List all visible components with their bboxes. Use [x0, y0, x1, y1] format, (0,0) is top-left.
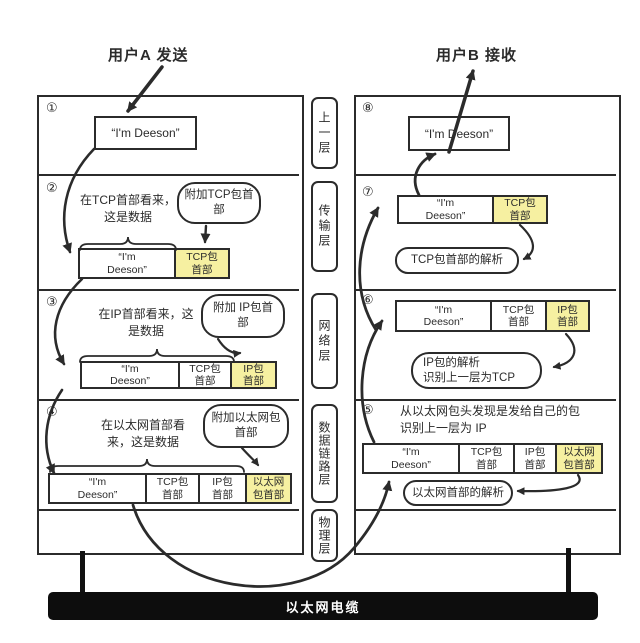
packet-box-step5: “I'm Deeson” TCP包 首部 IP包 首部 以太网 包首部 — [362, 443, 603, 474]
divider — [355, 289, 616, 291]
segment-ip-header: IP包 首部 — [513, 445, 555, 472]
step-number-2: ② — [46, 181, 58, 194]
step-number-1: ① — [46, 101, 58, 114]
segment-ethernet-header: 以太网 包首部 — [555, 445, 601, 472]
segment-tcp-header: TCP包 首部 — [178, 363, 230, 387]
divider — [38, 509, 299, 511]
divider — [355, 399, 616, 401]
layer-label-network: 网络层 — [311, 293, 338, 389]
cable-connector-right — [566, 548, 571, 593]
bubble-attach-ip-header: 附加 IP包首 部 — [201, 294, 285, 338]
layer-label-datalink: 数据链路层 — [311, 404, 338, 503]
note-ethernet-data: 在以太网首部看 来，这是数据 — [86, 417, 200, 451]
divider — [38, 399, 299, 401]
layer-label-transport: 传输层 — [311, 181, 338, 272]
bubble-parse-ethernet-header: 以太网首部的解析 — [403, 480, 513, 506]
segment-tcp-header: TCP包 首部 — [458, 445, 513, 472]
step-number-3: ③ — [46, 295, 58, 308]
segment-data: “I'm Deeson” — [364, 445, 458, 472]
cable-connector-left — [80, 551, 85, 593]
segment-ip-header: IP包 首部 — [545, 302, 588, 330]
step-number-7: ⑦ — [362, 185, 374, 198]
note-ethernet-received: 从以太网包头发现是发给自己的包 识别上一层为 IP — [400, 403, 605, 437]
step-number-8: ⑧ — [362, 101, 374, 114]
segment-data: “I'm Deeson” — [399, 197, 492, 222]
bubble-parse-tcp-header: TCP包首部的解析 — [395, 247, 519, 274]
segment-tcp-header: TCP包 首部 — [145, 475, 198, 502]
user-a-send-label: 用户A 发送 — [108, 44, 188, 65]
layer-label-upper: 上一层 — [311, 97, 338, 169]
tcpip-encapsulation-diagram: 用户A 发送 用户B 接收 ① ② ③ ④ ⑧ ⑦ ⑥ ⑤ “I'm Deeso… — [0, 0, 640, 643]
step-number-4: ④ — [46, 405, 58, 418]
bubble-attach-tcp-header: 附加TCP包首 部 — [177, 182, 261, 224]
note-tcp-data: 在TCP首部看来， 这是数据 — [68, 192, 188, 226]
packet-box-step3: “I'm Deeson” TCP包 首部 IP包 首部 — [80, 361, 277, 389]
segment-tcp-header: TCP包 首部 — [174, 250, 228, 277]
layer-label-physical: 物理层 — [311, 509, 338, 562]
segment-data: “I'm Deeson” — [50, 475, 145, 502]
divider — [38, 289, 299, 291]
segment-data: “I'm Deeson” — [82, 363, 178, 387]
divider — [355, 509, 616, 511]
user-b-receive-label: 用户B 接收 — [436, 44, 517, 65]
packet-box-step7: “I'm Deeson” TCP包 首部 — [397, 195, 548, 224]
divider — [355, 174, 616, 176]
segment-ethernet-header: 以太网 包首部 — [245, 475, 290, 502]
segment-ip-header: IP包 首部 — [230, 363, 275, 387]
step-number-6: ⑥ — [362, 293, 374, 306]
bubble-parse-ip-header: IP包的解析 识别上一层为TCP — [411, 352, 542, 389]
segment-ip-header: IP包 首部 — [198, 475, 245, 502]
segment-data: “I'm Deeson” — [397, 302, 490, 330]
message-box-step8: “I'm Deeson” — [408, 116, 510, 151]
packet-box-step2: “I'm Deeson” TCP包 首部 — [78, 248, 230, 279]
note-ip-data: 在IP首部看来，这 是数据 — [86, 306, 206, 340]
segment-data: “I'm Deeson” — [80, 250, 174, 277]
message-box-step1: “I'm Deeson” — [94, 116, 197, 150]
step-number-5: ⑤ — [362, 403, 374, 416]
ethernet-cable-bar: 以太网电缆 — [48, 592, 598, 620]
packet-box-step6: “I'm Deeson” TCP包 首部 IP包 首部 — [395, 300, 590, 332]
segment-tcp-header: TCP包 首部 — [490, 302, 545, 330]
segment-tcp-header: TCP包 首部 — [492, 197, 546, 222]
bubble-attach-ethernet-header: 附加以太网包 首部 — [203, 404, 289, 448]
divider — [38, 174, 299, 176]
packet-box-step4: “I'm Deeson” TCP包 首部 IP包 首部 以太网 包首部 — [48, 473, 292, 504]
